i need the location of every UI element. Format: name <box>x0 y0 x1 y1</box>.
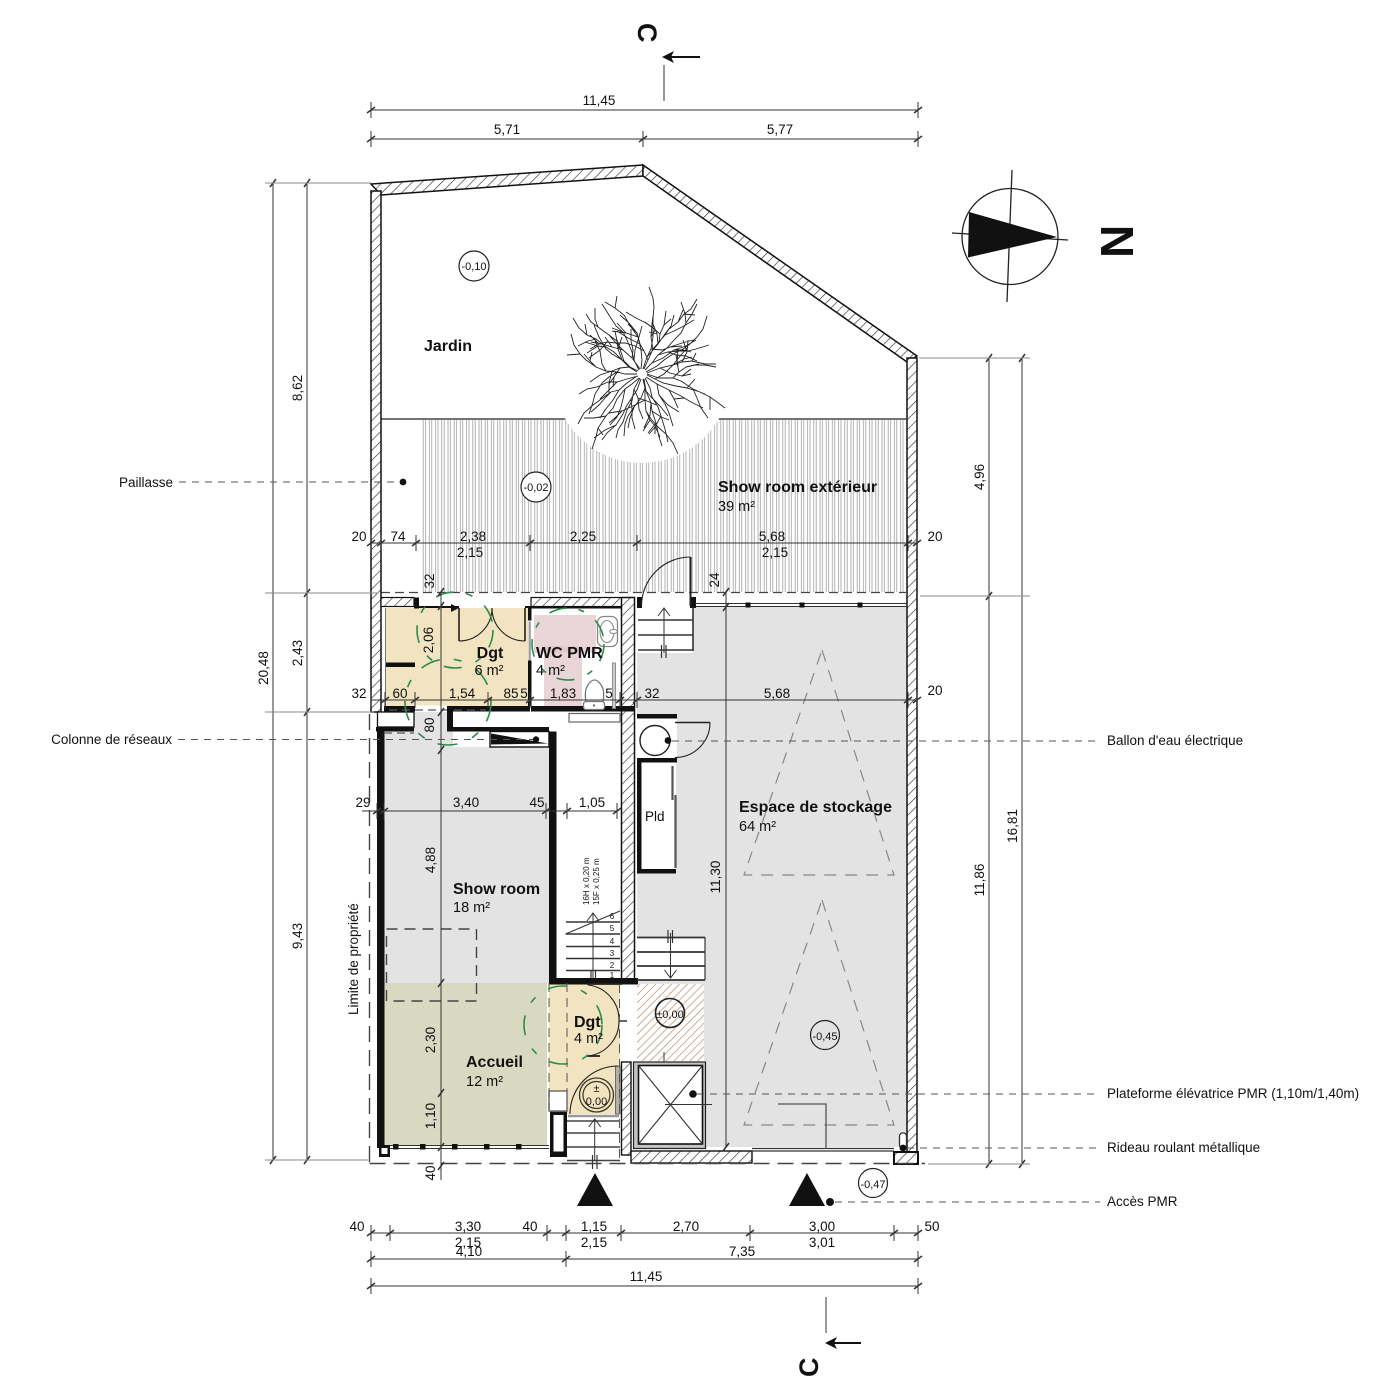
svg-text:16H x 0,20 m: 16H x 0,20 m <box>582 857 591 905</box>
svg-text:2,15: 2,15 <box>762 545 788 560</box>
svg-text:32: 32 <box>351 686 366 701</box>
svg-text:32: 32 <box>644 686 659 701</box>
svg-text:11,86: 11,86 <box>972 864 987 897</box>
svg-text:-0,45: -0,45 <box>812 1031 837 1043</box>
svg-text:8,62: 8,62 <box>290 375 305 401</box>
svg-text:C: C <box>632 23 662 43</box>
svg-text:Show room extérieur: Show room extérieur <box>718 479 877 496</box>
svg-text:Colonne de réseaux: Colonne de réseaux <box>51 732 172 747</box>
svg-text:40: 40 <box>423 1165 438 1180</box>
svg-text:-0,10: -0,10 <box>461 261 486 273</box>
svg-text:Espace de stockage: Espace de stockage <box>739 799 892 816</box>
svg-text:C: C <box>794 1358 824 1378</box>
svg-text:Paillasse: Paillasse <box>119 475 173 490</box>
svg-text:0,00: 0,00 <box>586 1096 607 1108</box>
svg-text:3,30: 3,30 <box>455 1219 481 1234</box>
svg-text:64 m²: 64 m² <box>739 819 776 835</box>
svg-text:Dgt: Dgt <box>574 1014 601 1031</box>
svg-text:11,45: 11,45 <box>583 93 616 108</box>
svg-text:-0,47: -0,47 <box>860 1179 885 1191</box>
svg-text:5,77: 5,77 <box>767 122 793 137</box>
svg-text:6: 6 <box>610 912 615 921</box>
svg-text:3,01: 3,01 <box>809 1235 835 1250</box>
svg-text:45: 45 <box>529 795 544 810</box>
svg-text:4,10: 4,10 <box>456 1244 482 1259</box>
svg-text:4,88: 4,88 <box>423 847 438 873</box>
svg-text:2,43: 2,43 <box>290 640 305 666</box>
svg-text:18 m²: 18 m² <box>453 900 490 916</box>
svg-text:5,68: 5,68 <box>764 686 790 701</box>
svg-text:Show room: Show room <box>453 881 540 898</box>
svg-text:74: 74 <box>390 529 406 544</box>
svg-text:1,54: 1,54 <box>449 686 476 701</box>
svg-text:4 m²: 4 m² <box>536 663 565 679</box>
svg-text:20,48: 20,48 <box>256 651 271 685</box>
svg-text:32: 32 <box>422 573 437 588</box>
svg-text:Accueil: Accueil <box>466 1054 523 1071</box>
svg-text:4,96: 4,96 <box>972 464 987 490</box>
svg-text:±0,00: ±0,00 <box>656 1009 683 1021</box>
svg-text:40: 40 <box>349 1219 364 1234</box>
svg-text:2,25: 2,25 <box>570 529 596 544</box>
svg-text:12 m²: 12 m² <box>466 1074 503 1090</box>
svg-text:20: 20 <box>927 683 942 698</box>
svg-text:Pld: Pld <box>645 809 665 824</box>
svg-text:11,30: 11,30 <box>708 861 723 894</box>
svg-text:16,81: 16,81 <box>1005 809 1020 843</box>
svg-text:1,10: 1,10 <box>423 1103 438 1129</box>
svg-text:Dgt: Dgt <box>477 645 504 662</box>
svg-text:5,71: 5,71 <box>494 122 520 137</box>
svg-text:39 m²: 39 m² <box>718 499 755 515</box>
svg-text:2,06: 2,06 <box>421 627 436 653</box>
svg-text:2: 2 <box>610 961 615 970</box>
svg-text:5: 5 <box>605 686 613 701</box>
svg-text:3: 3 <box>610 949 615 958</box>
svg-text:Jardin: Jardin <box>424 338 472 355</box>
svg-text:50: 50 <box>924 1219 939 1234</box>
svg-text:Rideau roulant métallique: Rideau roulant métallique <box>1107 1140 1260 1155</box>
svg-text:6 m²: 6 m² <box>475 663 504 679</box>
svg-text:5: 5 <box>610 924 615 933</box>
svg-text:20: 20 <box>927 529 942 544</box>
svg-text:3,00: 3,00 <box>809 1219 835 1234</box>
svg-text:5: 5 <box>520 686 528 701</box>
svg-text:1,15: 1,15 <box>581 1219 607 1234</box>
svg-text:80: 80 <box>422 717 437 732</box>
svg-text:40: 40 <box>522 1219 537 1234</box>
svg-text:Accès PMR: Accès PMR <box>1107 1194 1178 1209</box>
svg-text:2,30: 2,30 <box>423 1027 438 1053</box>
svg-text:4 m²: 4 m² <box>574 1031 603 1047</box>
svg-text:4: 4 <box>610 937 615 946</box>
svg-text:2,38: 2,38 <box>460 529 486 544</box>
svg-text:7,35: 7,35 <box>729 1244 755 1259</box>
svg-text:WC PMR: WC PMR <box>536 645 603 662</box>
svg-text:85: 85 <box>503 686 518 701</box>
svg-text:2,15: 2,15 <box>581 1235 607 1250</box>
svg-text:60: 60 <box>392 686 407 701</box>
svg-text:Limite de propriété: Limite de propriété <box>346 903 361 1015</box>
svg-text:-0,02: -0,02 <box>523 482 548 494</box>
svg-text:Ballon d'eau électrique: Ballon d'eau électrique <box>1107 733 1243 748</box>
svg-text:±: ± <box>593 1083 599 1095</box>
svg-text:29: 29 <box>355 795 370 810</box>
svg-text:Plateforme élévatrice PMR (1,1: Plateforme élévatrice PMR (1,10m/1,40m) <box>1107 1086 1359 1101</box>
svg-text:9,43: 9,43 <box>290 923 305 949</box>
svg-text:1,83: 1,83 <box>550 686 576 701</box>
svg-text:N: N <box>1091 225 1143 258</box>
svg-text:5,68: 5,68 <box>759 529 785 544</box>
svg-text:3,40: 3,40 <box>453 795 479 810</box>
svg-text:15F x 0,25 m: 15F x 0,25 m <box>592 858 601 905</box>
svg-text:20: 20 <box>351 529 366 544</box>
svg-text:1,05: 1,05 <box>579 795 605 810</box>
svg-text:24: 24 <box>707 572 722 588</box>
svg-text:2,15: 2,15 <box>457 545 483 560</box>
svg-text:11,45: 11,45 <box>630 1269 663 1284</box>
svg-text:2,70: 2,70 <box>673 1219 699 1234</box>
